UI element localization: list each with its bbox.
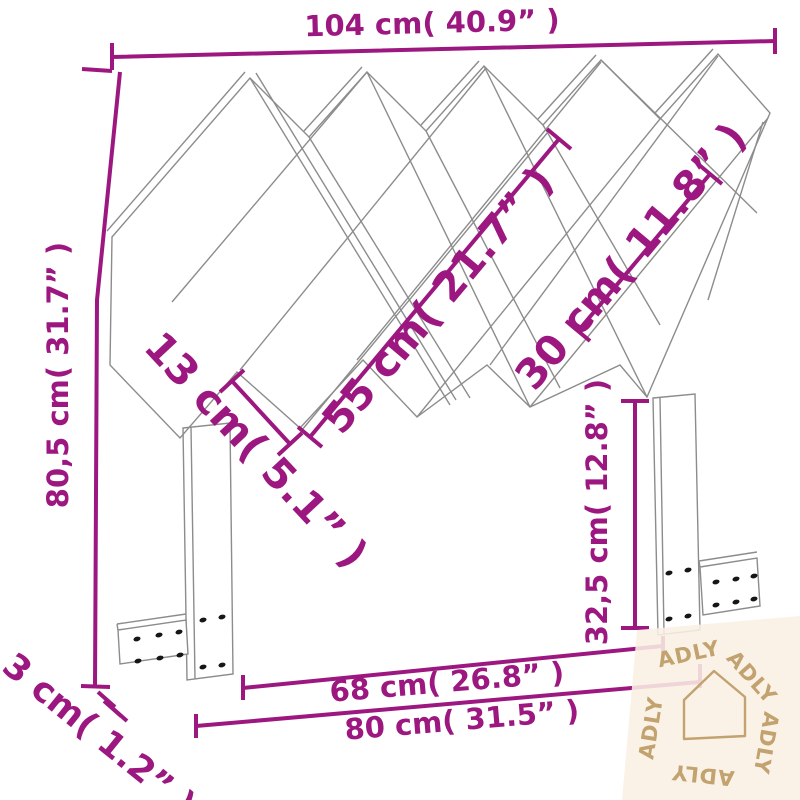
right-bracket	[699, 552, 760, 615]
dimension-label: 13 cm( 5.1” )	[135, 322, 377, 577]
dimension-label: 55 cm( 21.7” )	[312, 157, 562, 443]
left-leg	[183, 423, 233, 680]
dimension-inner-width: 68 cm( 26.8” )	[243, 636, 663, 709]
left-bracket	[117, 614, 188, 664]
slat-edge	[172, 72, 367, 302]
dimension-label: 3 cm( 1.2” )	[0, 646, 203, 800]
dimension-thickness: 3 cm( 1.2” )	[0, 646, 203, 800]
left-leg-body	[183, 423, 233, 680]
diagram-canvas: 104 cm( 40.9” ) 80,5 cm( 31.7” ) 55 cm( …	[0, 0, 800, 800]
dimension-label: 104 cm( 40.9” )	[304, 3, 560, 44]
left-bracket-body	[118, 620, 188, 664]
dimension-line	[81, 69, 120, 687]
watermark: ADLY ADLY ADLY ADLY ADLY	[622, 616, 800, 800]
dimension-diagram: 104 cm( 40.9” ) 80,5 cm( 31.7” ) 55 cm( …	[0, 0, 800, 800]
right-bracket-body	[700, 558, 760, 615]
dimension-label: 80,5 cm( 31.7” )	[41, 242, 75, 508]
thickness-edge	[655, 49, 713, 113]
dimension-line	[621, 401, 649, 628]
dimension-label: 32,5 cm( 12.8” )	[580, 379, 614, 645]
dimension-slat-width: 13 cm( 5.1” )	[135, 322, 377, 577]
thickness-edge	[538, 55, 596, 119]
thickness-edge	[421, 61, 479, 125]
thickness-edge	[304, 67, 362, 131]
dimension-top-width: 104 cm( 40.9” )	[112, 3, 775, 70]
dimension-leg-height: 32,5 cm( 12.8” )	[580, 379, 649, 645]
thickness-edge	[107, 72, 245, 231]
right-leg	[653, 394, 700, 635]
dimension-height: 80,5 cm( 31.7” )	[41, 69, 120, 687]
dimension-slat-long: 55 cm( 21.7” )	[298, 129, 571, 447]
slat-edge	[240, 68, 486, 370]
